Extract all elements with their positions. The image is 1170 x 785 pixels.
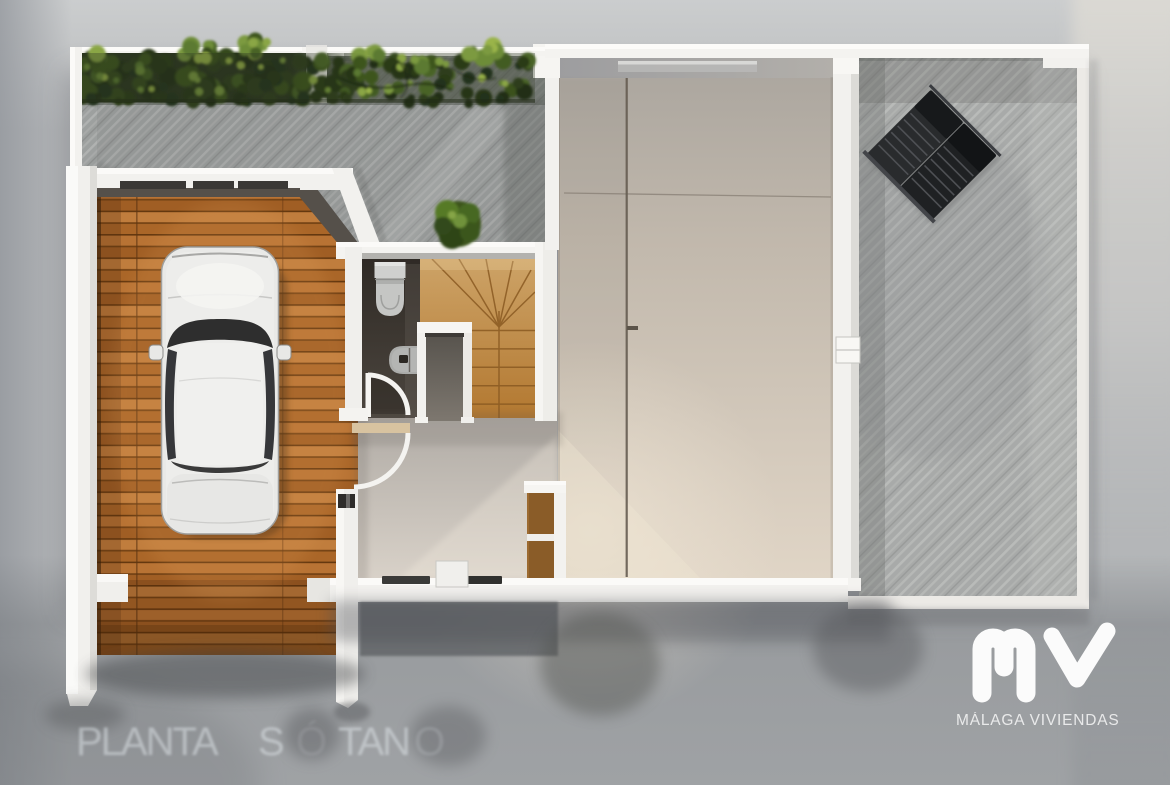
svg-text:PLANTA: PLANTA xyxy=(76,720,219,764)
svg-text:MÁLAGA VIVIENDAS: MÁLAGA VIVIENDAS xyxy=(956,712,1120,729)
svg-text:O: O xyxy=(414,720,444,764)
svg-text:S: S xyxy=(258,720,283,764)
svg-text:Ó: Ó xyxy=(296,719,326,764)
svg-text:TAN: TAN xyxy=(338,720,409,764)
